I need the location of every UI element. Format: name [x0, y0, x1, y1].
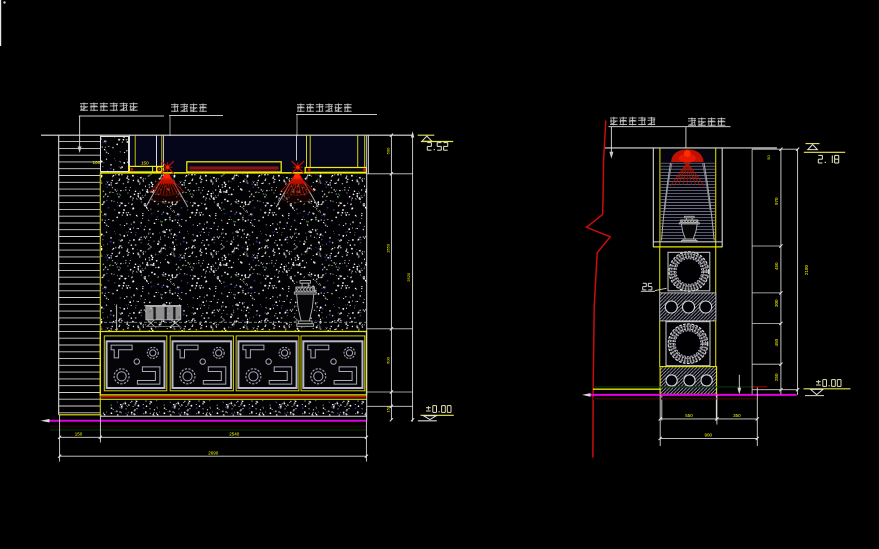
svg-text:2540: 2540	[229, 432, 240, 437]
svg-text:150: 150	[385, 405, 390, 412]
svg-text:250: 250	[774, 373, 779, 381]
svg-text:2520: 2520	[406, 272, 411, 282]
svg-text:350: 350	[733, 413, 741, 418]
svg-text:150: 150	[141, 161, 149, 166]
svg-text:100: 100	[92, 160, 100, 165]
svg-text:970: 970	[774, 197, 779, 205]
svg-text:450: 450	[774, 338, 779, 346]
svg-text:2180: 2180	[804, 264, 809, 275]
svg-text:500: 500	[385, 147, 390, 154]
svg-text:600: 600	[385, 356, 390, 363]
svg-text:50: 50	[766, 155, 771, 160]
svg-text:1550: 1550	[385, 243, 390, 253]
svg-text:900: 900	[705, 432, 713, 437]
svg-text:450: 450	[774, 262, 779, 270]
svg-text:550: 550	[685, 413, 693, 418]
svg-text:2690: 2690	[208, 451, 219, 456]
svg-text:300: 300	[774, 299, 779, 307]
svg-text:150: 150	[75, 432, 83, 437]
